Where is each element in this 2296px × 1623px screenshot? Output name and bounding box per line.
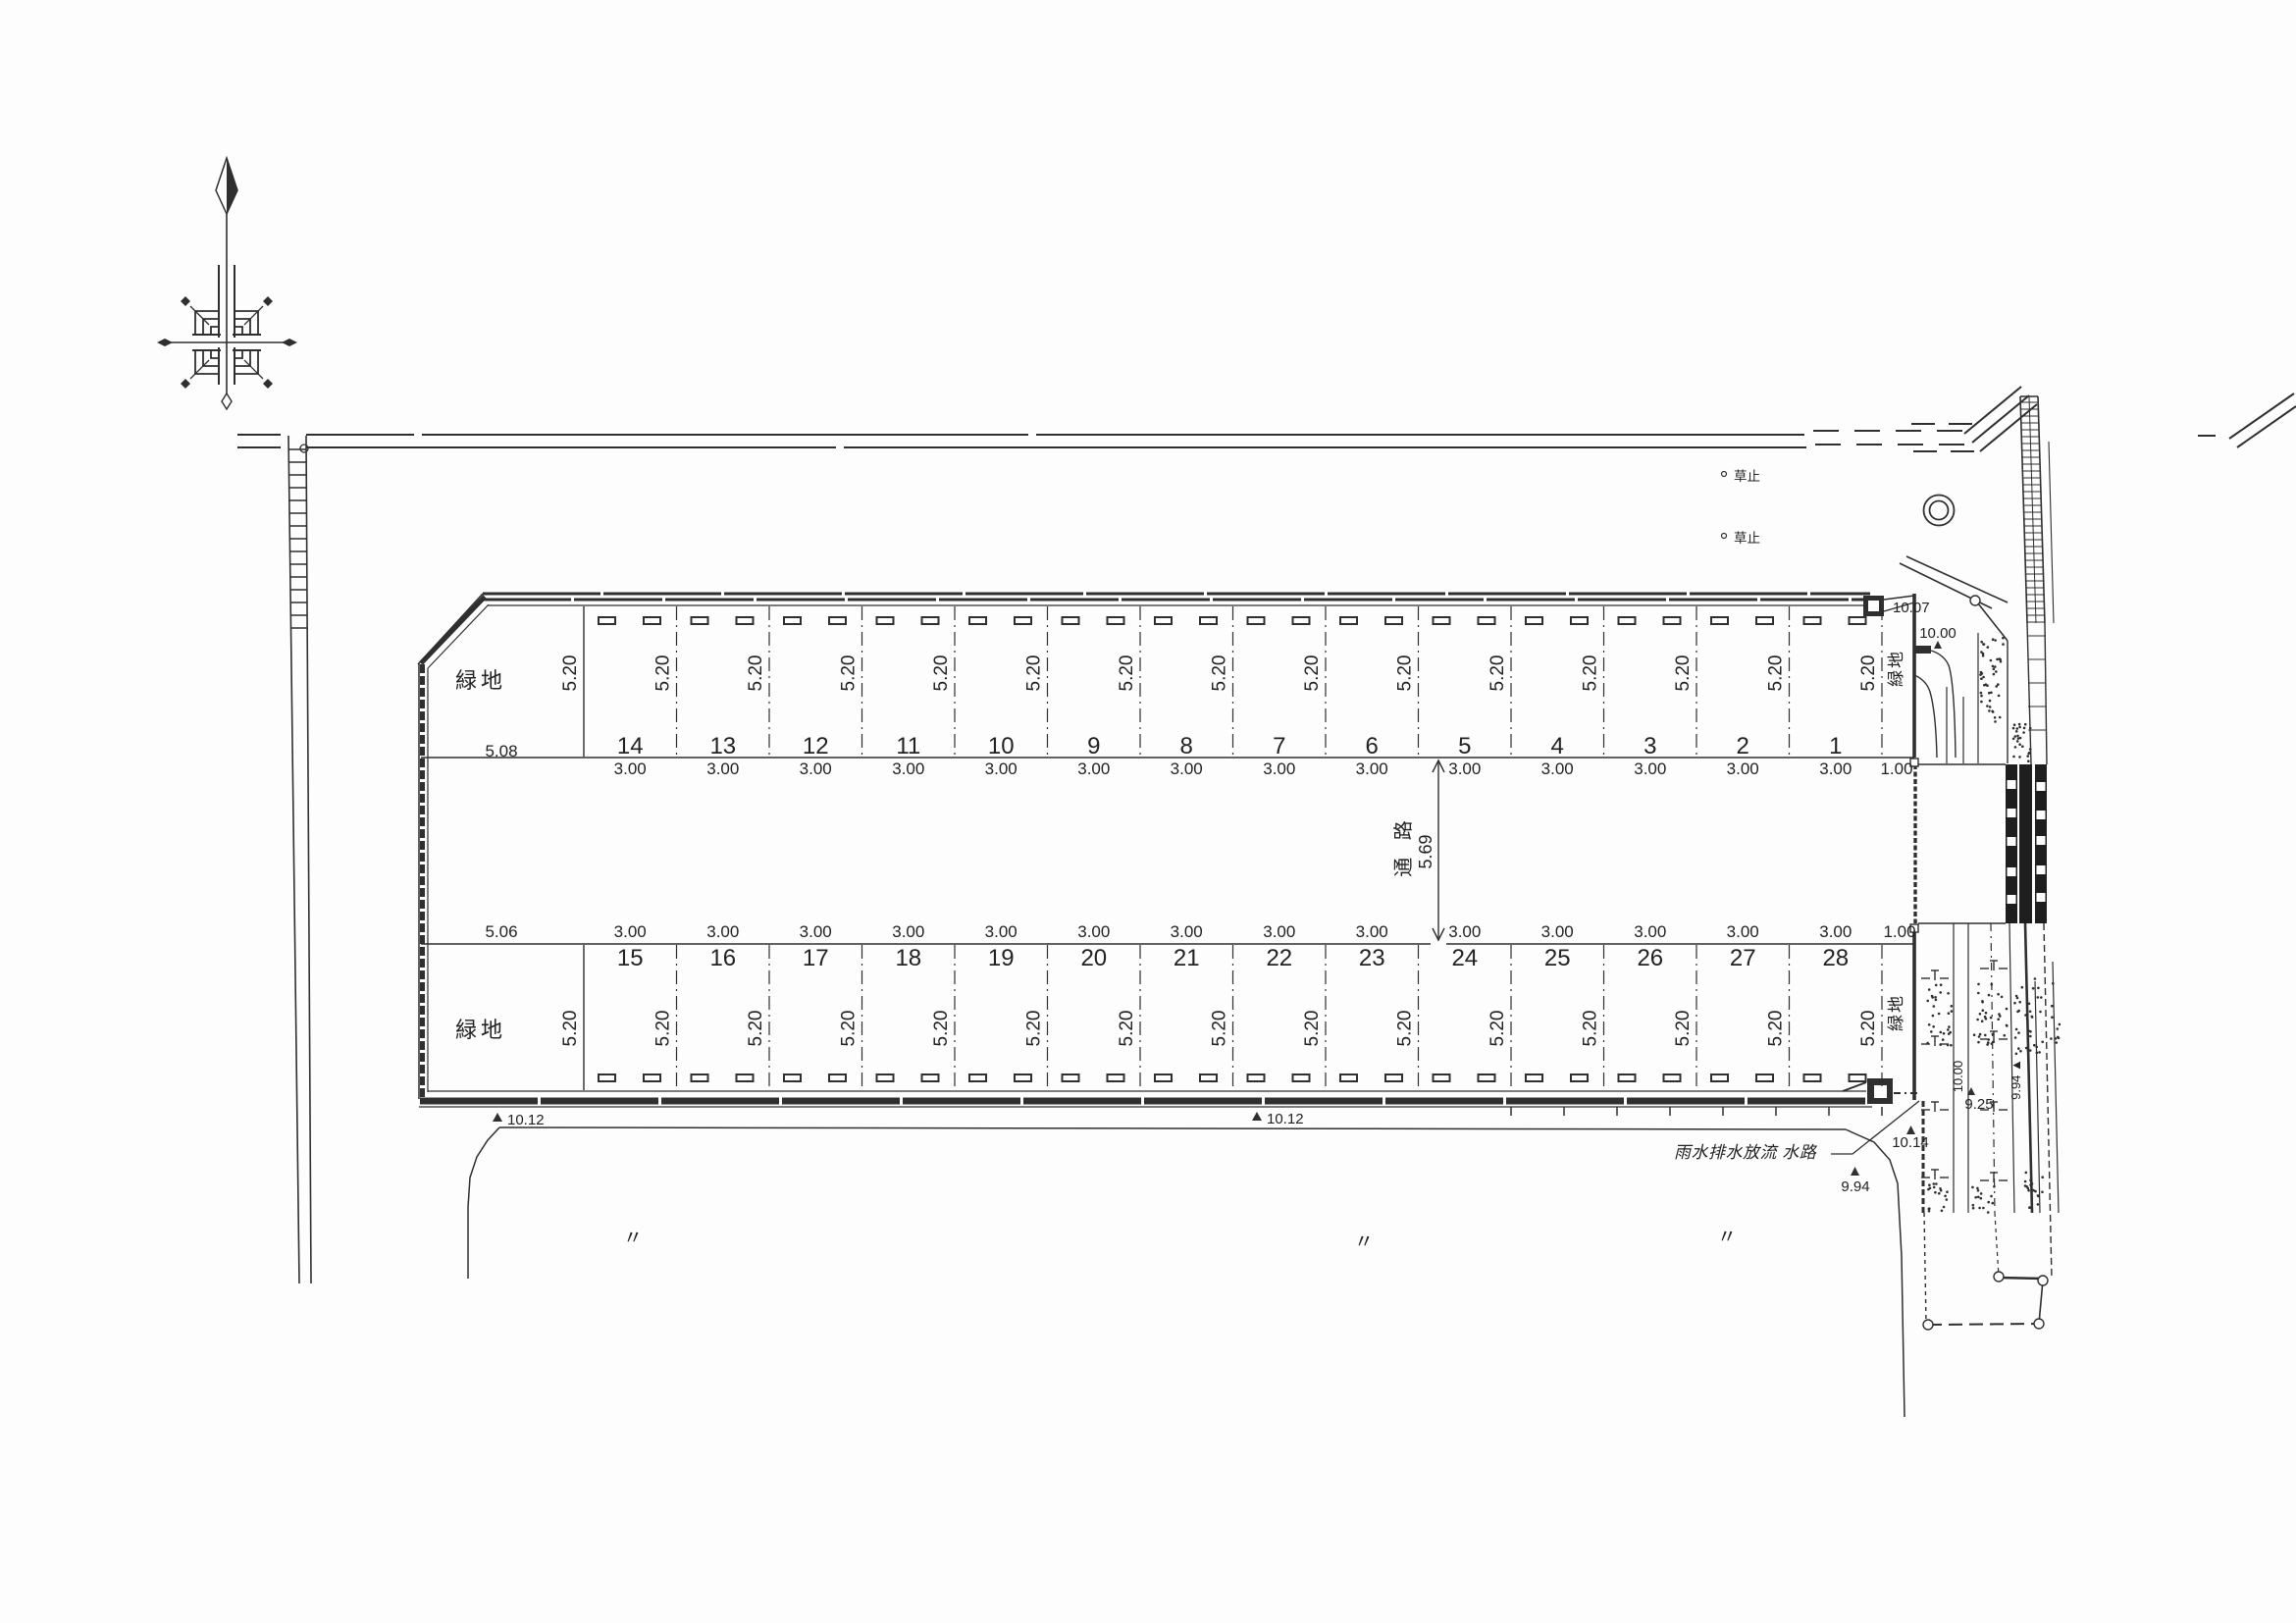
svg-text:16: 16 — [709, 945, 736, 971]
svg-text:5.20: 5.20 — [653, 1011, 674, 1047]
svg-text:12: 12 — [803, 733, 829, 759]
svg-text:緑地: 緑地 — [455, 668, 506, 693]
svg-text:3.00: 3.00 — [706, 922, 739, 941]
svg-text:3.00: 3.00 — [1263, 759, 1295, 778]
svg-text:6: 6 — [1366, 733, 1379, 759]
svg-text:10.00: 10.00 — [1951, 1061, 1965, 1093]
svg-text:5.20: 5.20 — [1395, 1011, 1416, 1047]
svg-text:雨水排水放流 水路: 雨水排水放流 水路 — [1674, 1143, 1818, 1162]
svg-text:15: 15 — [617, 945, 644, 971]
svg-text:3: 3 — [1644, 733, 1656, 759]
svg-text:5.20: 5.20 — [1581, 1011, 1601, 1047]
svg-text:9: 9 — [1087, 733, 1100, 759]
svg-text:10.00: 10.00 — [1919, 625, 1957, 642]
svg-text:5.20: 5.20 — [1117, 1011, 1137, 1047]
svg-text:5.20: 5.20 — [839, 1011, 860, 1047]
svg-text:5.20: 5.20 — [931, 1011, 952, 1047]
svg-text:25: 25 — [1544, 945, 1571, 971]
svg-text:7: 7 — [1273, 733, 1285, 759]
svg-text:8: 8 — [1180, 733, 1193, 759]
svg-text:5: 5 — [1458, 733, 1471, 759]
svg-text:5.20: 5.20 — [746, 655, 766, 692]
svg-text:11: 11 — [896, 733, 920, 759]
svg-text:3.00: 3.00 — [1356, 759, 1388, 778]
svg-text:5.20: 5.20 — [1858, 1011, 1879, 1047]
svg-text:5.20: 5.20 — [1302, 655, 1323, 692]
svg-text:3.00: 3.00 — [1077, 922, 1110, 941]
svg-text:緑地: 緑地 — [1887, 994, 1905, 1031]
svg-text:5.08: 5.08 — [485, 742, 517, 760]
svg-text:3.00: 3.00 — [1541, 759, 1574, 778]
svg-text:5.20: 5.20 — [1673, 655, 1694, 692]
svg-text:5.20: 5.20 — [653, 655, 674, 692]
svg-text:1: 1 — [1829, 733, 1842, 759]
svg-text:5.69: 5.69 — [1416, 834, 1435, 868]
svg-text:9.94: 9.94 — [1841, 1178, 1869, 1195]
svg-text:5.20: 5.20 — [1024, 1011, 1045, 1047]
svg-text:3.00: 3.00 — [614, 759, 647, 778]
svg-text:24: 24 — [1451, 945, 1478, 971]
svg-text:3.00: 3.00 — [1356, 922, 1388, 941]
svg-text:3.00: 3.00 — [706, 759, 739, 778]
svg-text:〃: 〃 — [623, 1228, 643, 1249]
svg-text:3.00: 3.00 — [1634, 759, 1666, 778]
svg-text:3.00: 3.00 — [985, 759, 1018, 778]
svg-text:3.00: 3.00 — [1819, 759, 1852, 778]
svg-text:5.20: 5.20 — [1673, 1011, 1694, 1047]
svg-text:5.20: 5.20 — [1024, 655, 1045, 692]
svg-text:5.20: 5.20 — [1302, 1011, 1323, 1047]
svg-text:1.00: 1.00 — [1883, 922, 1915, 941]
svg-text:5.20: 5.20 — [560, 1011, 581, 1047]
svg-text:5.20: 5.20 — [1858, 655, 1879, 692]
svg-text:草止: 草止 — [1734, 531, 1760, 546]
svg-text:草止: 草止 — [1734, 469, 1760, 484]
svg-text:10.14: 10.14 — [1892, 1134, 1929, 1151]
svg-text:22: 22 — [1266, 945, 1292, 971]
svg-text:5.20: 5.20 — [560, 655, 581, 692]
svg-text:5.20: 5.20 — [1487, 655, 1508, 692]
svg-text:5.20: 5.20 — [1210, 1011, 1230, 1047]
svg-text:3.00: 3.00 — [614, 922, 647, 941]
svg-text:3.00: 3.00 — [1448, 922, 1481, 941]
svg-text:2: 2 — [1737, 733, 1749, 759]
svg-text:5.20: 5.20 — [1581, 655, 1601, 692]
svg-text:3.00: 3.00 — [1819, 922, 1852, 941]
svg-text:21: 21 — [1174, 945, 1200, 971]
svg-text:3.00: 3.00 — [800, 759, 832, 778]
svg-text:5.20: 5.20 — [1210, 655, 1230, 692]
svg-text:23: 23 — [1359, 945, 1385, 971]
svg-text:10.12: 10.12 — [507, 1112, 545, 1128]
svg-text:5.20: 5.20 — [1766, 655, 1787, 692]
svg-text:14: 14 — [617, 733, 644, 759]
svg-text:27: 27 — [1730, 945, 1756, 971]
svg-text:緑地: 緑地 — [1887, 650, 1905, 687]
svg-text:3.00: 3.00 — [1171, 922, 1203, 941]
svg-text:緑地: 緑地 — [455, 1018, 506, 1042]
svg-text:5.20: 5.20 — [931, 655, 952, 692]
svg-text:5.20: 5.20 — [746, 1011, 766, 1047]
svg-text:3.00: 3.00 — [1727, 922, 1759, 941]
svg-text:9.25: 9.25 — [1964, 1096, 1993, 1113]
svg-text:〃: 〃 — [1354, 1231, 1374, 1253]
svg-text:18: 18 — [895, 945, 921, 971]
svg-text:5.06: 5.06 — [485, 922, 517, 941]
svg-text:10: 10 — [988, 733, 1015, 759]
svg-text:3.00: 3.00 — [1077, 759, 1110, 778]
svg-text:5.20: 5.20 — [1766, 1011, 1787, 1047]
svg-text:10.07: 10.07 — [1893, 600, 1930, 616]
svg-text:3.00: 3.00 — [1541, 922, 1574, 941]
svg-text:10.12: 10.12 — [1267, 1111, 1304, 1127]
svg-text:9.94 ▲: 9.94 ▲ — [2009, 1059, 2023, 1100]
svg-text:3.00: 3.00 — [1727, 759, 1759, 778]
svg-text:3.00: 3.00 — [985, 922, 1018, 941]
svg-text:3.00: 3.00 — [1634, 922, 1666, 941]
svg-text:5.20: 5.20 — [1395, 655, 1416, 692]
svg-text:26: 26 — [1637, 945, 1663, 971]
svg-text:5.20: 5.20 — [839, 655, 860, 692]
svg-text:3.00: 3.00 — [1263, 922, 1295, 941]
svg-text:5.20: 5.20 — [1487, 1011, 1508, 1047]
svg-text:5.20: 5.20 — [1117, 655, 1137, 692]
svg-text:20: 20 — [1080, 945, 1107, 971]
svg-text:28: 28 — [1822, 945, 1849, 971]
svg-text:3.00: 3.00 — [892, 759, 924, 778]
svg-text:19: 19 — [988, 945, 1015, 971]
svg-text:17: 17 — [803, 945, 829, 971]
svg-text:〃: 〃 — [1717, 1227, 1737, 1248]
svg-text:3.00: 3.00 — [1171, 759, 1203, 778]
svg-text:4: 4 — [1551, 733, 1564, 759]
svg-text:1.00: 1.00 — [1880, 759, 1912, 778]
svg-text:3.00: 3.00 — [892, 922, 924, 941]
svg-text:通 路: 通 路 — [1392, 814, 1415, 877]
svg-text:3.00: 3.00 — [1448, 759, 1481, 778]
svg-text:13: 13 — [709, 733, 736, 759]
svg-text:3.00: 3.00 — [800, 922, 832, 941]
